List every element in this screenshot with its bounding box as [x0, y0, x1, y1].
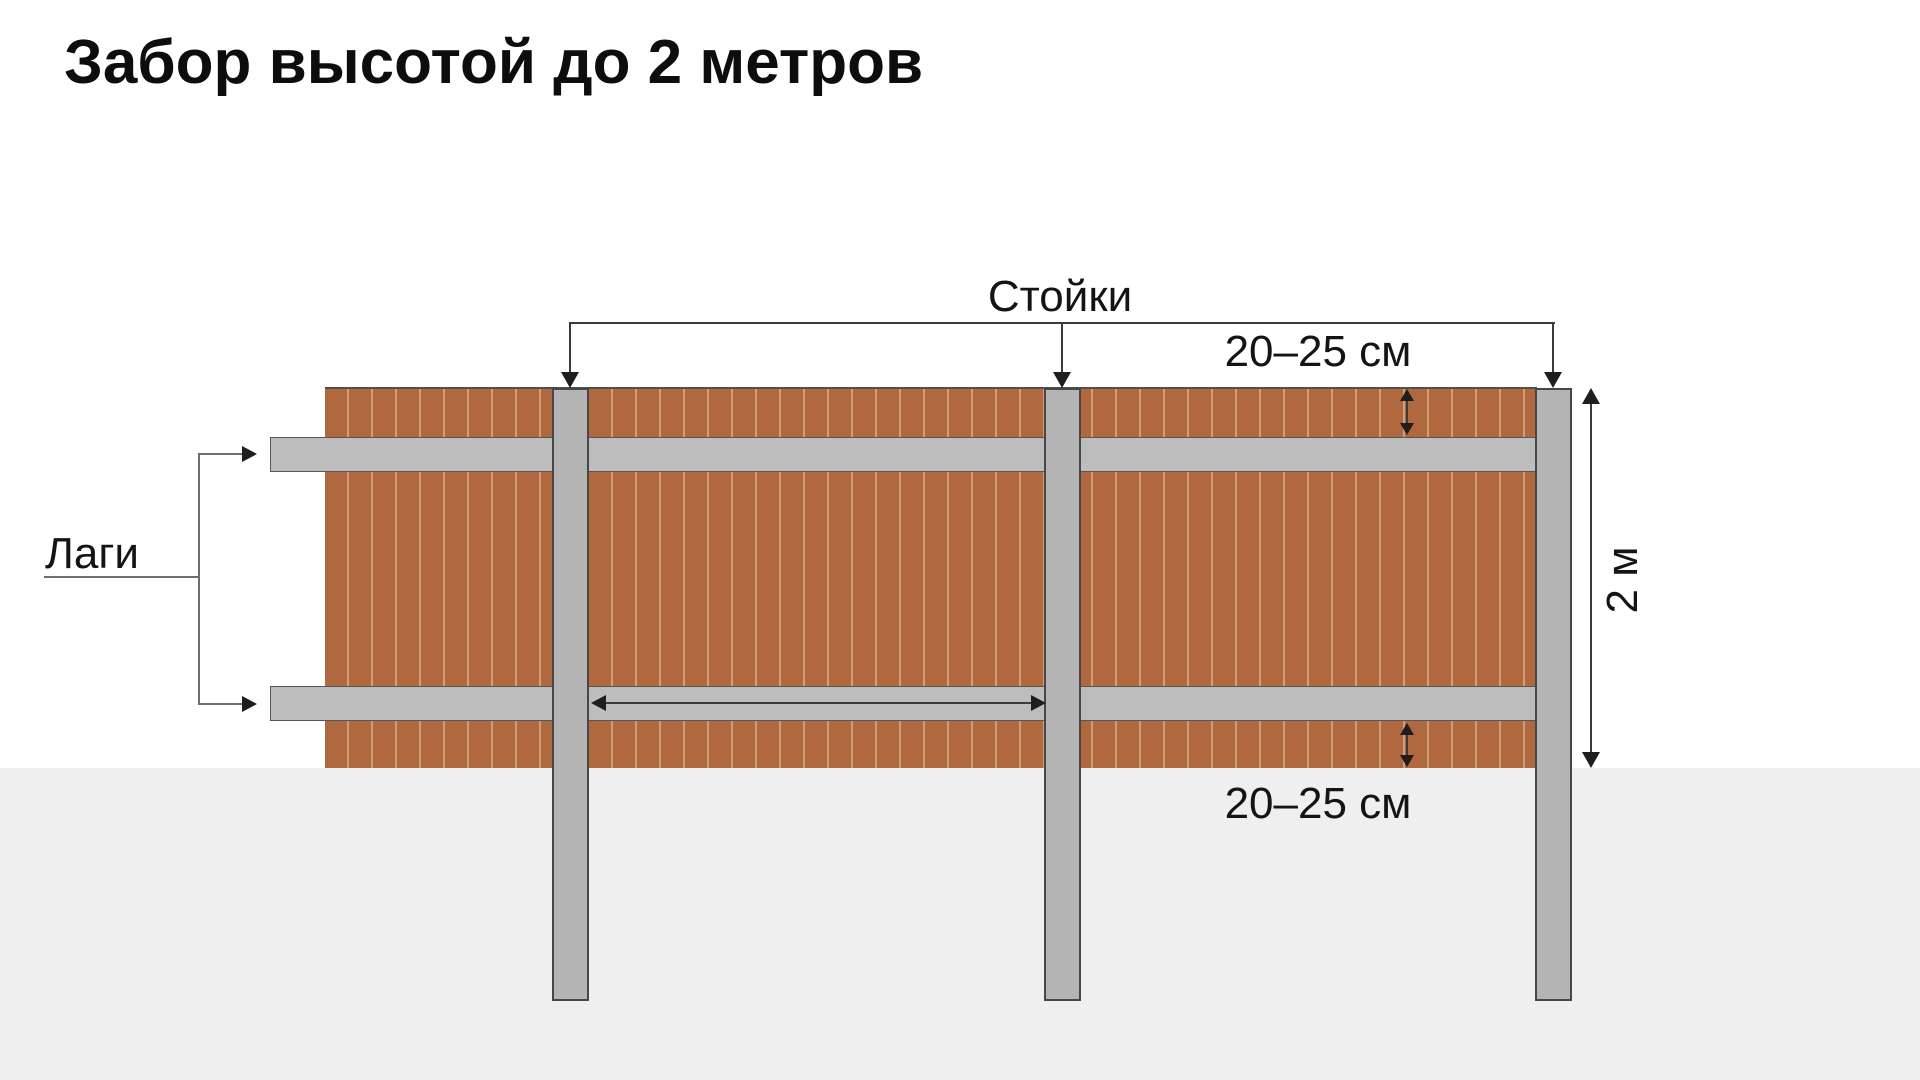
fence-height-label: 2 м: [1601, 547, 1645, 614]
posts-bracket-drop: [1552, 322, 1554, 372]
fence-diagram: Забор высотой до 2 метров Стойки Лаги 20…: [0, 0, 1920, 1080]
fence-post: [1044, 388, 1081, 1001]
posts-label: Стойки: [988, 275, 1132, 319]
arrow-down-icon: [1544, 372, 1562, 388]
rails-bracket-arm: [198, 453, 244, 455]
arrow-down-icon: [1400, 423, 1414, 435]
arrow-down-icon: [1582, 752, 1600, 768]
rail-top: [270, 437, 1572, 472]
dimension-line: [601, 702, 1035, 704]
posts-bracket-drop: [569, 322, 571, 372]
arrow-up-icon: [1400, 389, 1414, 401]
arrow-down-icon: [561, 372, 579, 388]
rails-bracket-line: [198, 453, 200, 705]
dimension-line: [1590, 398, 1592, 758]
fence-post: [1535, 388, 1572, 1001]
arrow-up-icon: [1582, 388, 1600, 404]
ground: [0, 768, 1920, 1080]
arrow-down-icon: [1400, 755, 1414, 767]
fence-post: [552, 388, 589, 1001]
arrow-right-icon: [242, 696, 257, 712]
arrow-up-icon: [1400, 723, 1414, 735]
page-title: Забор высотой до 2 метров: [64, 32, 923, 94]
arrow-right-icon: [242, 446, 257, 462]
rail-offset-top-label: 20–25 см: [1225, 330, 1412, 374]
rail-offset-bottom-label: 20–25 см: [1225, 782, 1412, 826]
rails-label-underline: [44, 576, 200, 578]
rails-bracket-arm: [198, 703, 244, 705]
arrow-right-icon: [1031, 695, 1046, 711]
arrow-down-icon: [1053, 372, 1071, 388]
posts-bracket-drop: [1061, 322, 1063, 372]
arrow-left-icon: [591, 695, 606, 711]
rails-label: Лаги: [45, 532, 139, 576]
